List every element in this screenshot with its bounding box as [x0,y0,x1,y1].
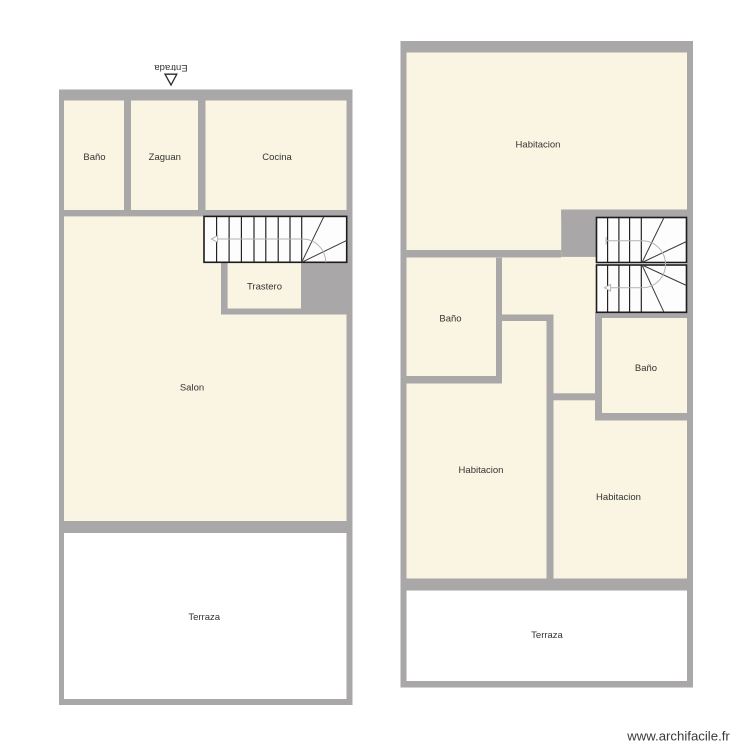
svg-text:Habitacion: Habitacion [516,140,561,151]
svg-text:Baño: Baño [83,152,105,163]
svg-text:Zaguan: Zaguan [149,152,181,163]
svg-text:Baño: Baño [439,314,461,325]
svg-text:Habitacion: Habitacion [596,492,641,503]
svg-text:www.archifacile.fr: www.archifacile.fr [626,729,730,744]
svg-text:Habitacion: Habitacion [459,465,504,476]
svg-text:Baño: Baño [635,363,657,374]
svg-text:Entrada: Entrada [154,62,188,73]
svg-text:Terraza: Terraza [531,630,563,641]
svg-text:Terraza: Terraza [188,612,220,623]
svg-text:Cocina: Cocina [262,152,292,163]
svg-text:Trastero: Trastero [247,282,282,293]
svg-text:Salon: Salon [180,383,204,394]
